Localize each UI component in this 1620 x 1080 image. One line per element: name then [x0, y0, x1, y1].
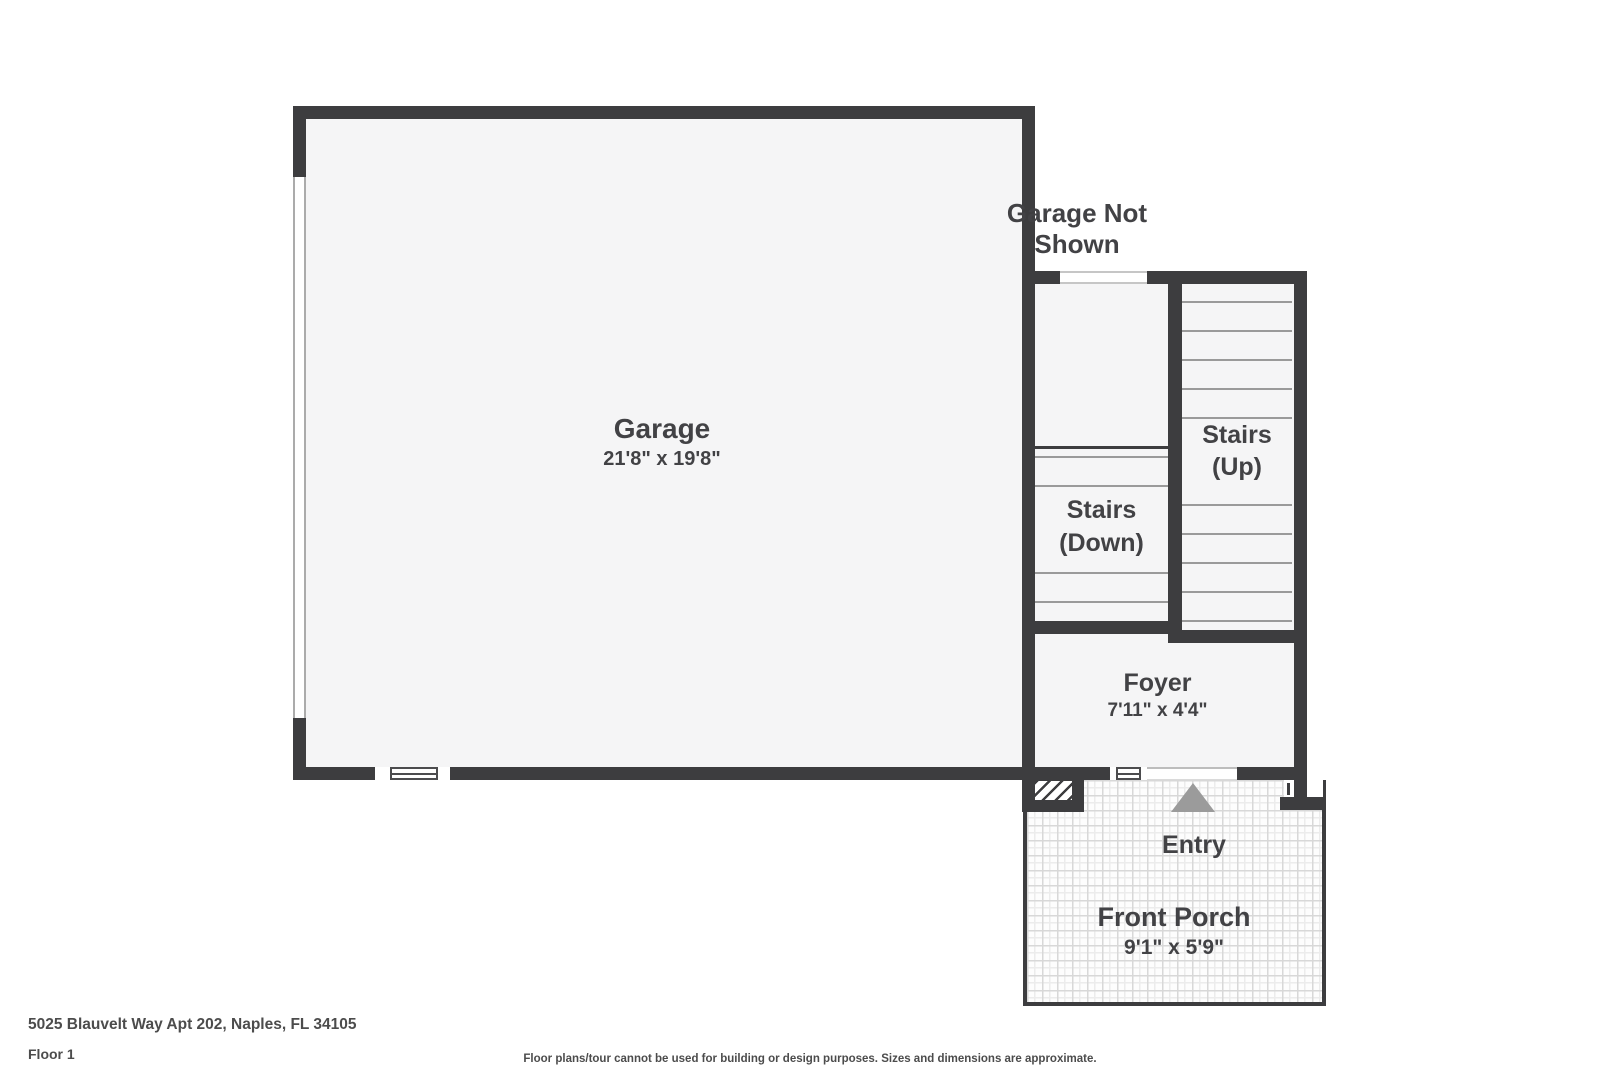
stairs-up-line2: (Up) [1182, 451, 1292, 483]
entry-arrow-icon [1171, 783, 1215, 812]
garage-not-shown-label: Garage Not Shown [952, 198, 1202, 260]
front-porch-dims: 9'1" x 5'9" [1024, 934, 1324, 961]
garage-not-shown-line2: Shown [952, 229, 1202, 260]
porch-right-notch-tick [1287, 783, 1290, 795]
garage-bottom-window-frame [390, 767, 438, 780]
stairs-down-line1: Stairs [1035, 494, 1168, 527]
front-porch-label-block: Front Porch 9'1" x 5'9" [1024, 901, 1324, 961]
garage-label-block: Garage 21'8" x 19'8" [512, 412, 812, 472]
stairs-down-bottom-wall [1022, 621, 1180, 634]
stairs-up-label: Stairs (Up) [1182, 419, 1292, 489]
stairs-up-line1: Stairs [1182, 419, 1292, 451]
disclaimer-text: Floor plans/tour cannot be used for buil… [0, 1053, 1620, 1065]
annex-top-opening [1060, 271, 1147, 284]
steps-hatch-icon [1035, 781, 1072, 800]
front-porch-floor [1023, 780, 1326, 1006]
garage-dims: 21'8" x 19'8" [512, 446, 812, 472]
stairs-up-left-wall [1168, 284, 1182, 638]
entry-door-opening [1147, 767, 1237, 780]
foyer-dims: 7'11" x 4'4" [1035, 698, 1280, 724]
garage-not-shown-line1: Garage Not [952, 198, 1202, 229]
entry-label: Entry [1094, 831, 1294, 859]
foyer-label-block: Foyer 7'11" x 4'4" [1035, 668, 1280, 724]
porch-right-step-wall [1280, 797, 1326, 810]
address-text: 5025 Blauvelt Way Apt 202, Naples, FL 34… [28, 1016, 357, 1034]
stairs-down-label: Stairs (Down) [1035, 494, 1168, 560]
foyer-window-frame [1116, 767, 1141, 780]
porch-right-outside-patch [1307, 780, 1323, 797]
garage-label: Garage [512, 412, 812, 446]
front-porch-label: Front Porch [1024, 901, 1324, 934]
garage-left-window-icon [293, 177, 306, 718]
floorplan-canvas: Garage 21'8" x 19'8" Garage Not Shown St… [0, 0, 1620, 1080]
stairs-down-line2: (Down) [1035, 527, 1168, 560]
foyer-label: Foyer [1035, 668, 1280, 698]
stairs-up-bottom-wall [1168, 630, 1307, 643]
